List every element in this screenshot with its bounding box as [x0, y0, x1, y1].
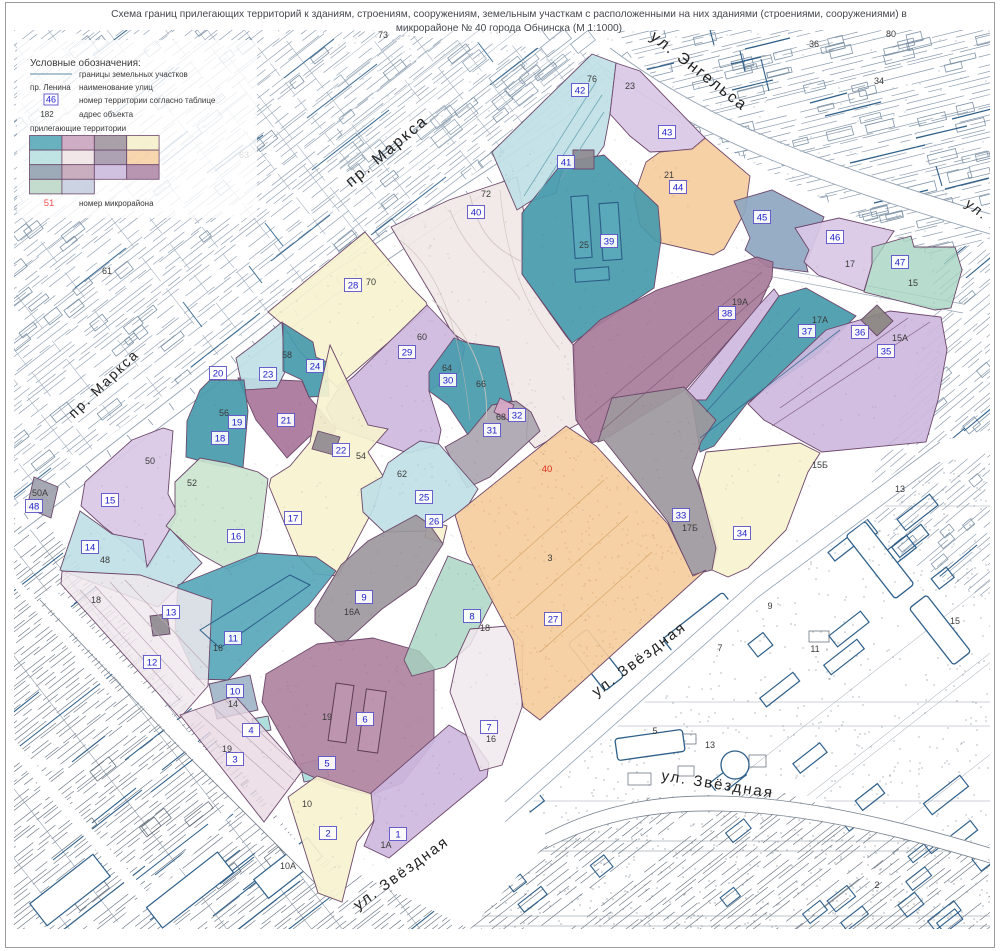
svg-text:42: 42 [575, 86, 586, 97]
svg-text:19: 19 [222, 744, 232, 754]
svg-text:7: 7 [486, 723, 491, 734]
svg-text:номер территории согласно табл: номер территории согласно таблице [79, 96, 216, 105]
svg-text:6: 6 [362, 715, 367, 726]
svg-text:43: 43 [662, 128, 673, 139]
svg-text:17: 17 [288, 514, 299, 525]
svg-text:48: 48 [29, 502, 40, 513]
svg-text:20: 20 [213, 369, 224, 380]
svg-text:18: 18 [480, 623, 490, 633]
svg-text:40: 40 [471, 208, 482, 219]
svg-text:16: 16 [213, 643, 223, 653]
svg-text:44: 44 [673, 183, 684, 194]
svg-text:50: 50 [145, 456, 155, 466]
svg-text:34: 34 [874, 76, 884, 86]
svg-text:номер микрорайона: номер микрорайона [79, 199, 154, 208]
svg-text:50А: 50А [32, 488, 48, 498]
svg-text:68: 68 [496, 412, 506, 422]
svg-text:36: 36 [809, 39, 819, 49]
svg-text:9: 9 [767, 601, 772, 611]
svg-text:56: 56 [219, 408, 229, 418]
svg-text:13: 13 [895, 484, 905, 494]
svg-text:17А: 17А [812, 315, 828, 325]
svg-text:18: 18 [215, 434, 226, 445]
svg-text:18: 18 [91, 595, 101, 605]
svg-text:39: 39 [604, 237, 615, 248]
svg-text:25: 25 [419, 493, 430, 504]
svg-text:70: 70 [366, 277, 376, 287]
svg-text:41: 41 [561, 158, 572, 169]
svg-text:21: 21 [281, 416, 292, 427]
svg-text:16: 16 [231, 532, 242, 543]
svg-text:64: 64 [442, 363, 452, 373]
svg-text:21: 21 [664, 170, 674, 180]
svg-text:4: 4 [248, 726, 253, 737]
svg-text:микрорайоне № 40 города Обнин: микрорайоне № 40 города Обнинска (М 1:10… [396, 22, 622, 34]
svg-text:40: 40 [542, 464, 553, 475]
svg-text:8: 8 [469, 612, 474, 623]
svg-text:Условные обозначения:: Условные обозначения: [30, 57, 141, 69]
svg-text:23: 23 [263, 370, 274, 381]
svg-text:51: 51 [44, 198, 55, 209]
svg-text:45: 45 [757, 213, 768, 224]
svg-text:22: 22 [336, 446, 347, 457]
svg-text:36: 36 [855, 328, 866, 339]
svg-text:3: 3 [232, 755, 237, 766]
svg-text:46: 46 [830, 233, 841, 244]
svg-text:1: 1 [395, 830, 400, 841]
svg-text:54: 54 [356, 451, 366, 461]
svg-text:23: 23 [625, 81, 635, 91]
svg-text:60: 60 [417, 332, 427, 342]
svg-text:62: 62 [397, 469, 407, 479]
svg-text:58: 58 [282, 350, 292, 360]
svg-text:15: 15 [105, 496, 116, 507]
svg-text:29: 29 [402, 348, 413, 359]
svg-text:15А: 15А [892, 333, 908, 343]
svg-text:35: 35 [881, 347, 892, 358]
svg-text:28: 28 [348, 281, 359, 292]
svg-text:14: 14 [228, 699, 238, 709]
svg-text:17: 17 [845, 259, 855, 269]
svg-text:182: 182 [40, 110, 54, 119]
svg-text:80: 80 [886, 29, 896, 39]
svg-text:38: 38 [722, 309, 733, 320]
svg-text:47: 47 [895, 258, 906, 269]
svg-text:19А: 19А [732, 297, 748, 307]
svg-text:16: 16 [486, 734, 496, 744]
svg-text:46: 46 [46, 95, 56, 105]
svg-text:9: 9 [361, 593, 366, 604]
svg-text:72: 72 [481, 189, 491, 199]
svg-text:15Б: 15Б [812, 460, 828, 470]
svg-text:25: 25 [579, 240, 589, 250]
svg-text:3: 3 [547, 553, 552, 563]
svg-text:31: 31 [487, 426, 498, 437]
svg-text:12: 12 [147, 658, 158, 669]
svg-text:2: 2 [874, 880, 879, 890]
svg-text:15: 15 [950, 616, 960, 626]
svg-text:10: 10 [230, 687, 241, 698]
svg-text:73: 73 [378, 30, 388, 40]
svg-text:10А: 10А [280, 861, 296, 871]
svg-text:17Б: 17Б [682, 523, 698, 533]
svg-text:прилегающие территории: прилегающие территории [30, 124, 126, 133]
svg-text:19: 19 [232, 418, 243, 429]
svg-text:14: 14 [85, 543, 96, 554]
svg-text:24: 24 [310, 362, 321, 373]
svg-text:наименование улиц: наименование улиц [79, 83, 153, 92]
svg-text:адрес объекта: адрес объекта [79, 110, 134, 119]
svg-text:5: 5 [324, 759, 329, 770]
svg-text:7: 7 [717, 643, 722, 653]
svg-text:пр. Ленина: пр. Ленина [30, 83, 71, 92]
svg-text:26: 26 [429, 517, 440, 528]
svg-text:2: 2 [325, 829, 330, 840]
svg-text:13: 13 [705, 740, 715, 750]
svg-text:16А: 16А [344, 607, 360, 617]
svg-text:границы земельных участков: границы земельных участков [79, 70, 188, 79]
svg-text:5: 5 [652, 726, 657, 736]
svg-text:37: 37 [802, 327, 813, 338]
svg-text:33: 33 [676, 511, 687, 522]
svg-text:66: 66 [476, 379, 486, 389]
svg-text:30: 30 [443, 376, 454, 387]
svg-text:48: 48 [100, 555, 110, 565]
svg-text:Схема границ прилегающих терри: Схема границ прилегающих территорий к зд… [111, 9, 907, 20]
svg-text:32: 32 [512, 411, 523, 422]
svg-text:27: 27 [548, 615, 559, 626]
svg-text:11: 11 [228, 634, 238, 645]
svg-text:61: 61 [102, 266, 112, 276]
svg-text:34: 34 [737, 529, 748, 540]
svg-text:10: 10 [302, 799, 312, 809]
svg-text:13: 13 [166, 608, 177, 619]
svg-text:19: 19 [322, 712, 332, 722]
svg-text:1А: 1А [380, 840, 391, 850]
svg-text:15: 15 [908, 278, 918, 288]
svg-text:76: 76 [587, 74, 597, 84]
svg-text:52: 52 [187, 478, 197, 488]
svg-text:11: 11 [810, 644, 819, 654]
